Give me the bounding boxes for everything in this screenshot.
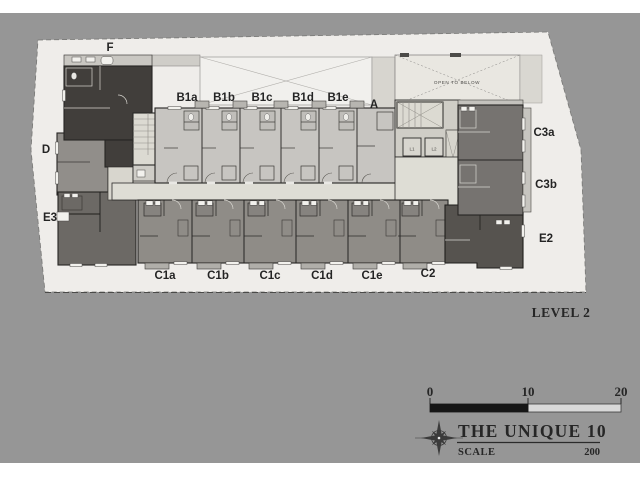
unit-e3-area	[58, 192, 136, 265]
unit-label-b1e: B1e	[327, 92, 348, 104]
unit-label-c3b: C3b	[535, 179, 557, 191]
unit-label-c1c: C1c	[259, 270, 281, 282]
scale-label: SCALE	[458, 447, 496, 458]
unit-label-b1a: B1a	[176, 92, 198, 104]
scale-bar-tick-20: 20	[615, 384, 628, 399]
scale-value: 200	[584, 447, 600, 458]
unit-label-c1e: C1e	[361, 270, 382, 282]
project-title: THE UNIQUE 10	[458, 421, 607, 441]
unit-label-b1d: B1d	[292, 92, 314, 104]
unit-label-c1d: C1d	[311, 270, 333, 282]
elevator-lobby	[395, 157, 460, 205]
top-unit-row	[155, 101, 400, 184]
elevator-l1-label: L1	[409, 147, 415, 152]
unit-label-b1b: B1b	[213, 92, 235, 104]
open-to-below-area: OPEN TO BELOW	[395, 53, 542, 105]
unit-label-a: A	[370, 99, 378, 111]
unit-label-f: F	[106, 42, 113, 54]
unit-label-e3: E3	[43, 212, 57, 224]
unit-label-c1b: C1b	[207, 270, 229, 282]
bottom-unit-row	[138, 200, 448, 269]
unit-label-c1a: C1a	[154, 270, 176, 282]
scale-bar-tick-10: 10	[522, 384, 535, 399]
right-core: L1 L2	[395, 100, 460, 205]
open-to-below-label: OPEN TO BELOW	[434, 80, 480, 85]
unit-label-b1c: B1c	[251, 92, 273, 104]
unit-d-area	[57, 133, 108, 195]
level-label: LEVEL 2	[532, 305, 591, 320]
right-wing	[458, 100, 531, 215]
unit-label-d: D	[42, 144, 50, 156]
scale-bar-tick-0: 0	[427, 384, 434, 399]
elevator-l2-label: L2	[431, 147, 437, 152]
unit-label-c3a: C3a	[533, 127, 555, 139]
unit-label-c2: C2	[421, 268, 436, 280]
floor-plan-sheet: OPEN TO BELOW	[0, 0, 640, 480]
unit-label-e2: E2	[539, 233, 553, 245]
